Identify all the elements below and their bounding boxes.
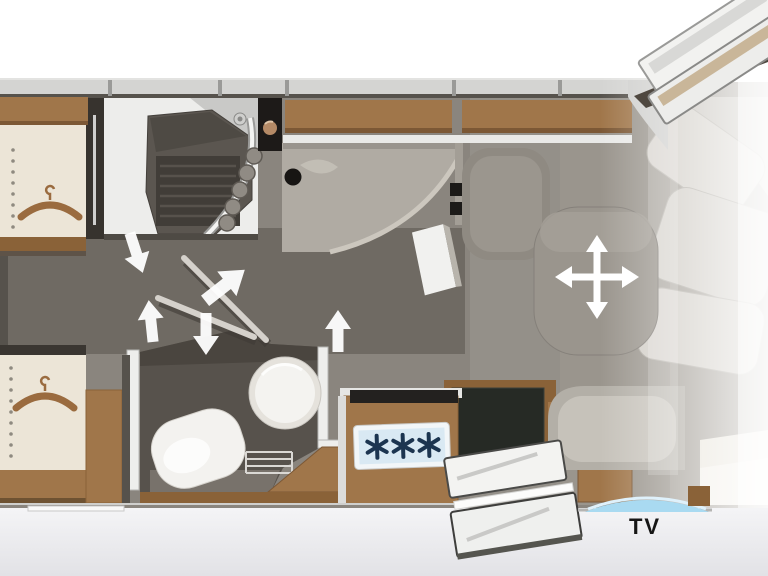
exterior-step-strip xyxy=(28,506,124,511)
floorplan-canvas: TV xyxy=(0,0,768,576)
hob-panel xyxy=(353,422,450,469)
toilet-room xyxy=(127,331,350,503)
hob-unit xyxy=(338,388,462,504)
sideboard-wood-end xyxy=(688,486,710,506)
cab-fade-edge xyxy=(738,78,768,508)
washbasin xyxy=(249,357,321,429)
tv-label: TV xyxy=(629,514,661,539)
wardrobe-side-panel xyxy=(86,390,122,503)
shower-room xyxy=(104,90,262,240)
shelf-peg-dots xyxy=(9,366,13,458)
motorhome-floorplan: TV xyxy=(0,0,768,576)
toilet-room-bottom-edge xyxy=(140,492,350,503)
overhead-cabinet xyxy=(0,97,88,125)
cabinet-shelf-line xyxy=(283,135,632,143)
sink-drain xyxy=(285,169,302,186)
